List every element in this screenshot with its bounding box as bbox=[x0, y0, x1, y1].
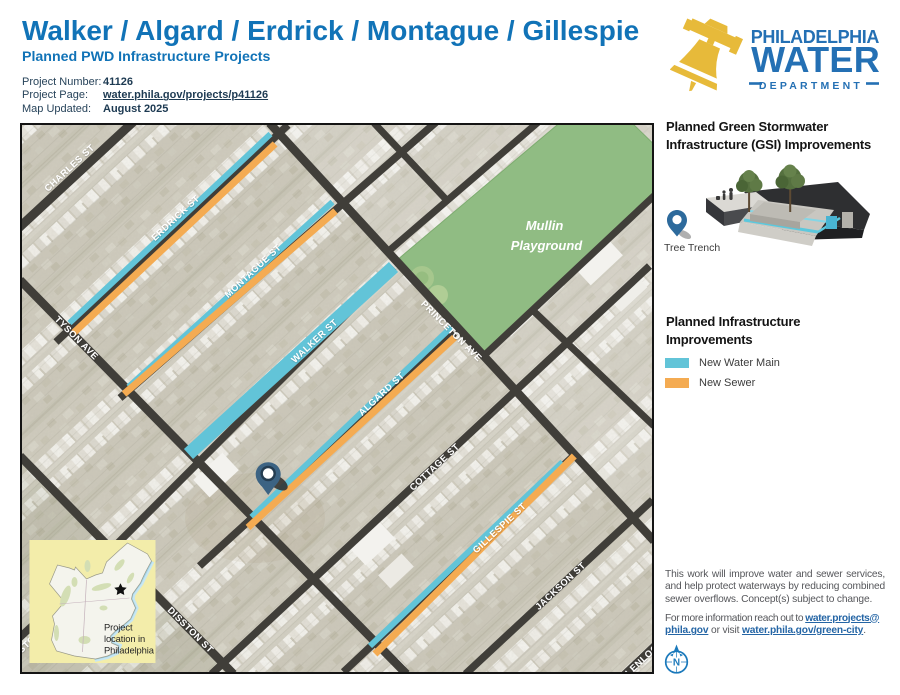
svg-text:Philadelphia: Philadelphia bbox=[104, 645, 155, 656]
svg-text:Project: Project bbox=[104, 622, 133, 633]
svg-text:WATER: WATER bbox=[751, 39, 880, 80]
svg-text:DEPARTMENT: DEPARTMENT bbox=[759, 80, 863, 92]
svg-text:Playground: Playground bbox=[511, 238, 584, 253]
svg-text:location in: location in bbox=[104, 633, 145, 644]
svg-text:Mullin: Mullin bbox=[526, 218, 564, 233]
svg-text:N: N bbox=[673, 658, 680, 669]
